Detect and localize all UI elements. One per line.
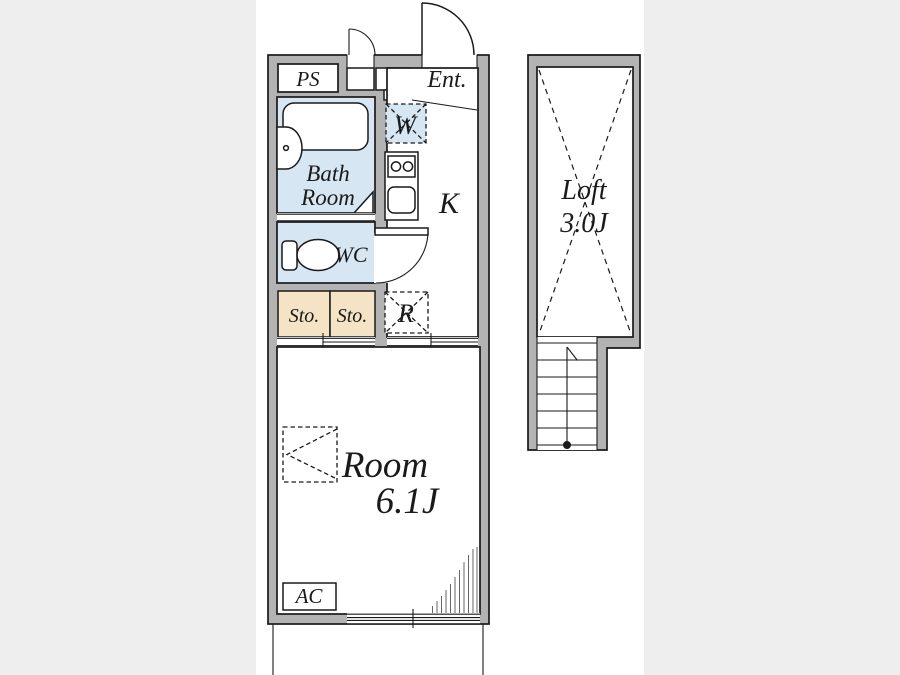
washer-label: W bbox=[394, 111, 418, 140]
bath-label-line2: Room bbox=[300, 185, 355, 210]
wc-label: WC bbox=[335, 242, 368, 267]
loft-size-label: 3.0J bbox=[559, 208, 609, 239]
kitchen-counter bbox=[385, 152, 418, 220]
ps-label: PS bbox=[295, 67, 320, 91]
wc-door-opening bbox=[374, 233, 388, 283]
wash-basin bbox=[277, 127, 302, 169]
room-label: Room bbox=[341, 445, 428, 486]
main-unit: PS Ent. K Bath Room bbox=[268, 3, 489, 675]
sink bbox=[388, 187, 415, 213]
bath-label-line1: Bath bbox=[306, 161, 349, 186]
toilet bbox=[282, 240, 339, 271]
entrance-label: Ent. bbox=[426, 67, 466, 93]
storage-left-label: Sto. bbox=[289, 305, 320, 327]
bath-wc-partition bbox=[277, 213, 375, 222]
basin-drain bbox=[284, 146, 289, 151]
burner-left bbox=[391, 162, 400, 171]
storage-right-label: Sto. bbox=[337, 305, 368, 327]
ac-label: AC bbox=[294, 584, 324, 608]
fridge-label: R bbox=[397, 299, 414, 328]
shoe-cabinet bbox=[347, 68, 374, 90]
loft-label: Loft bbox=[560, 175, 607, 206]
floor-plan-page: PS Ent. K Bath Room bbox=[0, 0, 900, 675]
floor-plan-drawing: PS Ent. K Bath Room bbox=[0, 0, 900, 675]
meter-door-opening bbox=[347, 54, 374, 69]
room-size-label: 6.1J bbox=[376, 481, 440, 522]
burner-right bbox=[403, 162, 412, 171]
kitchen-label: K bbox=[438, 187, 461, 220]
